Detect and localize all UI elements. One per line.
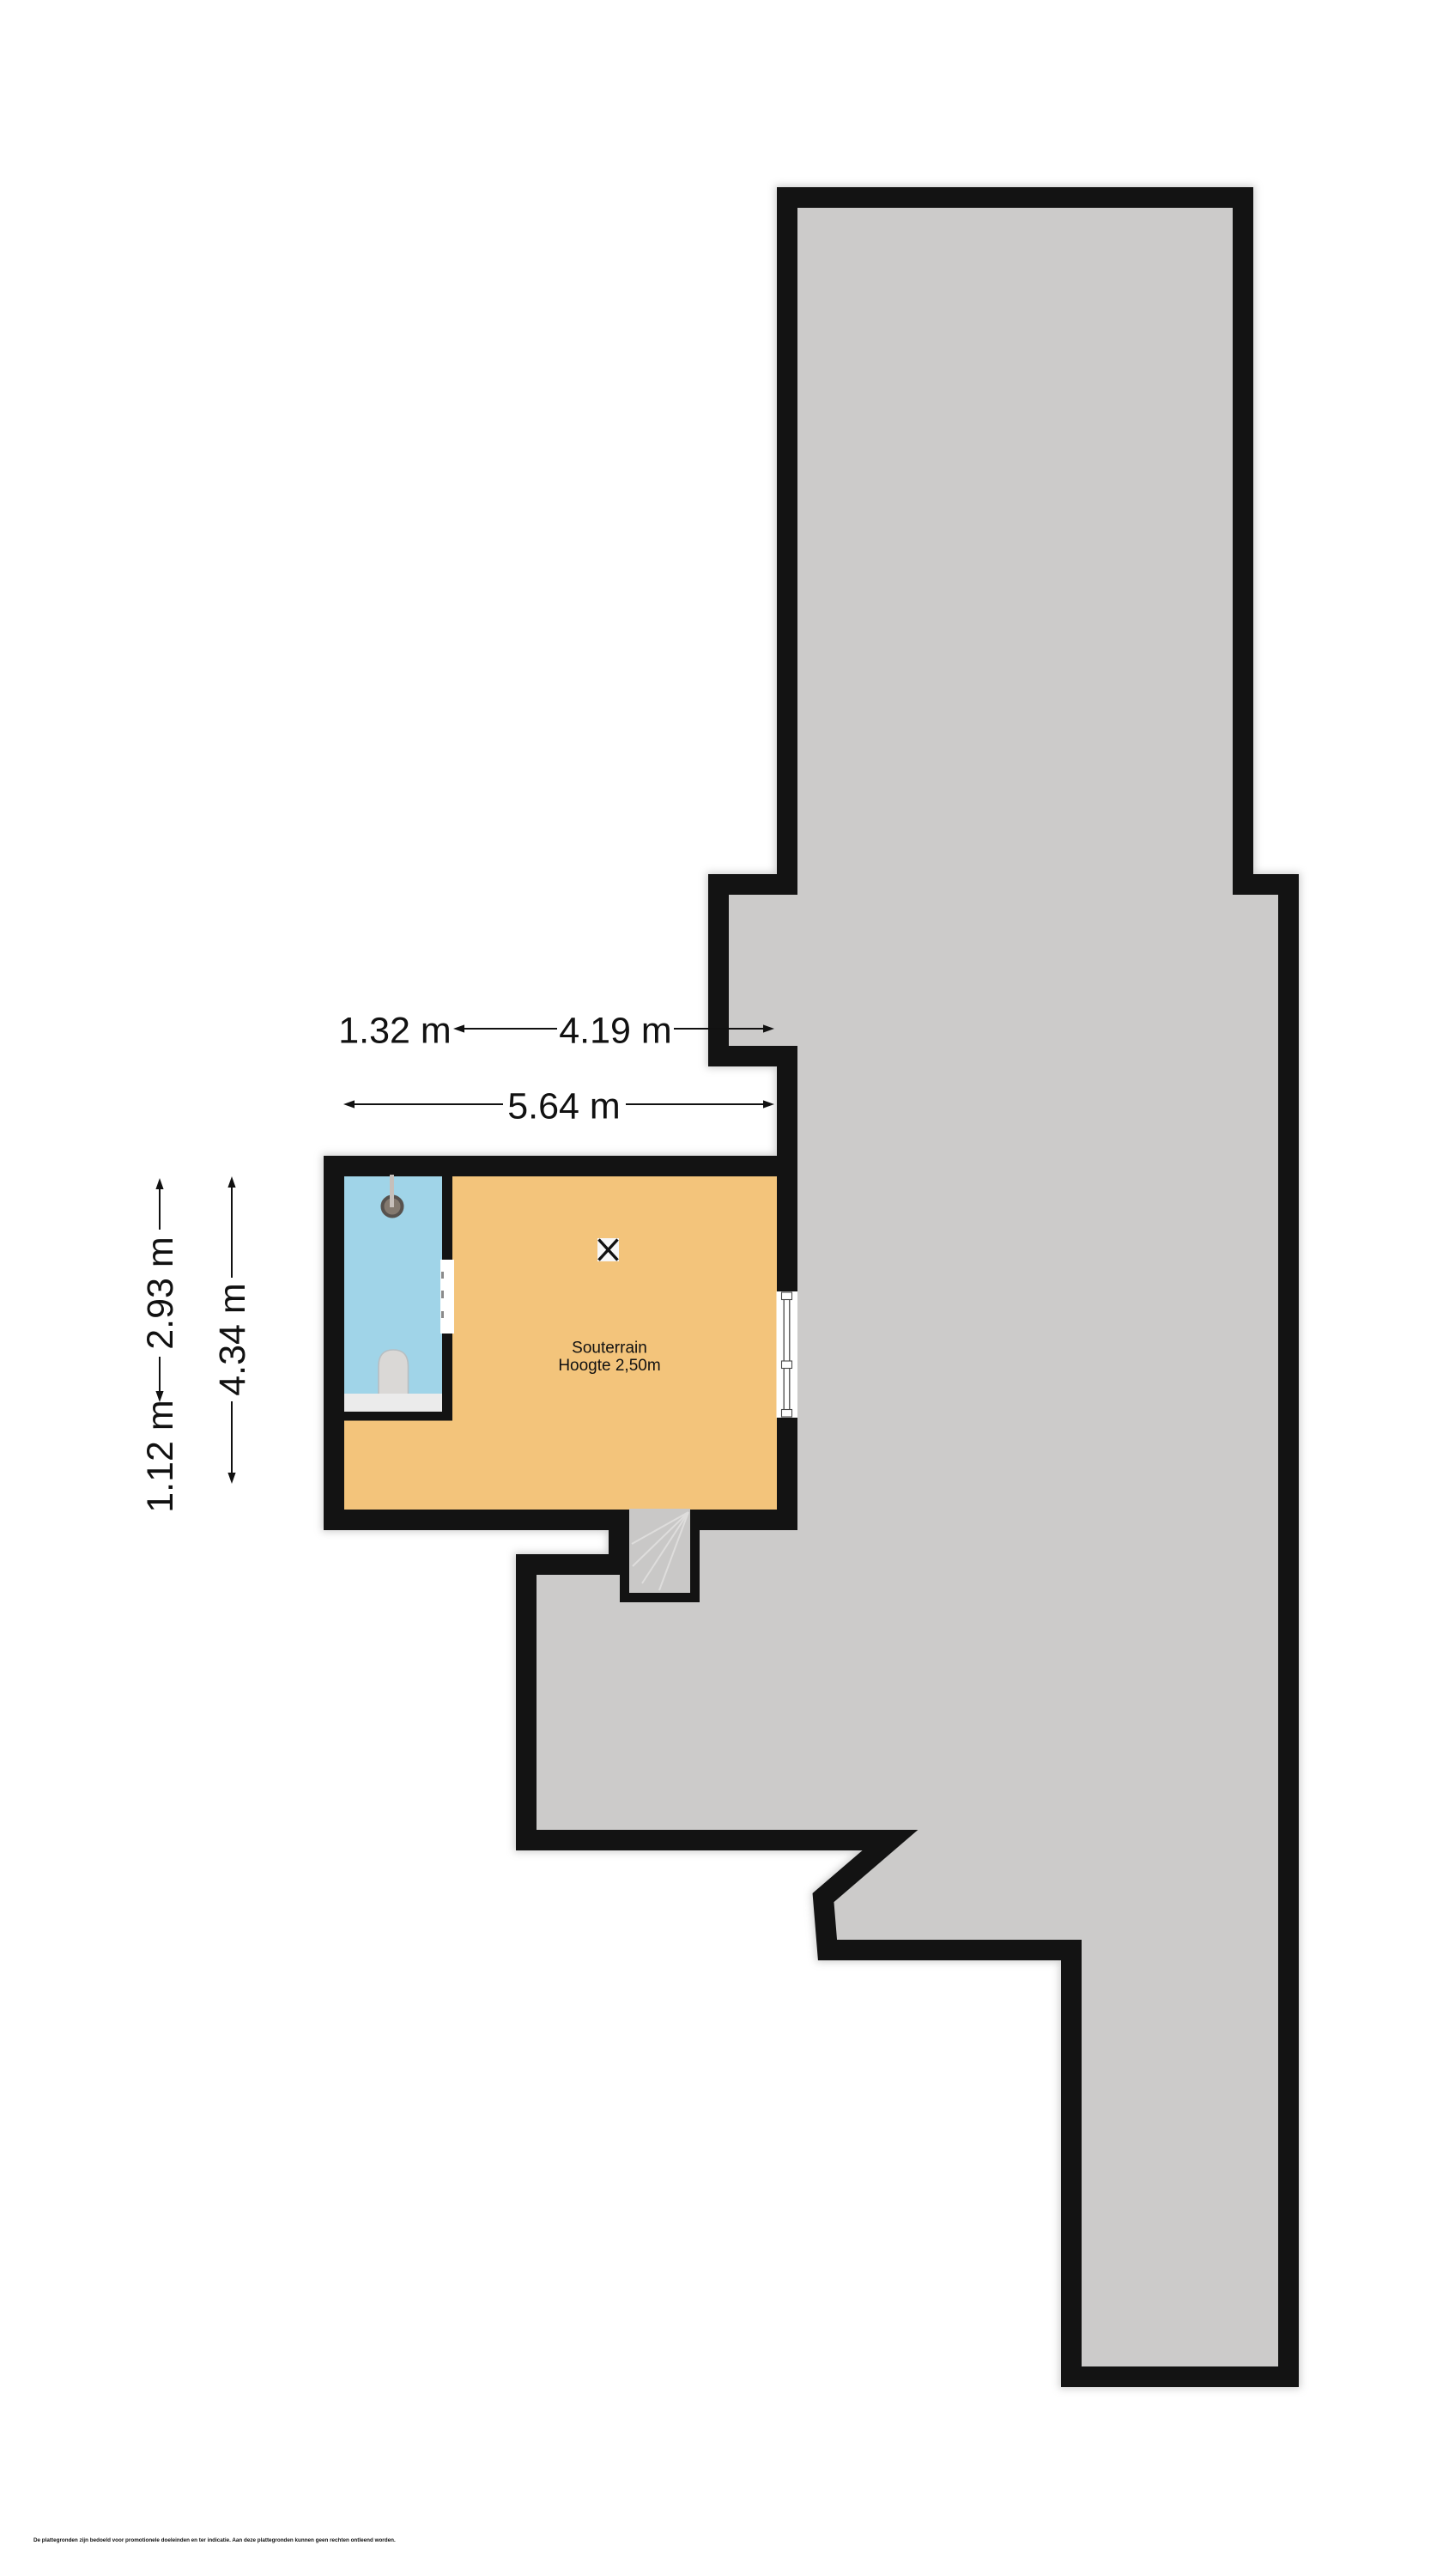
svg-text:De plattegronden zijn bedoeld: De plattegronden zijn bedoeld voor promo… (33, 2537, 396, 2543)
svg-text:1.12 m: 1.12 m (140, 1400, 181, 1512)
svg-text:4.19 m: 4.19 m (559, 1011, 671, 1052)
svg-text:4.34 m: 4.34 m (212, 1283, 253, 1395)
svg-text:2.93 m: 2.93 m (140, 1236, 181, 1349)
svg-text:Hoogte 2,50m: Hoogte 2,50m (558, 1357, 660, 1375)
svg-text:1.32 m: 1.32 m (338, 1011, 451, 1052)
svg-text:Souterrain: Souterrain (572, 1340, 647, 1358)
svg-text:5.64 m: 5.64 m (507, 1086, 620, 1127)
